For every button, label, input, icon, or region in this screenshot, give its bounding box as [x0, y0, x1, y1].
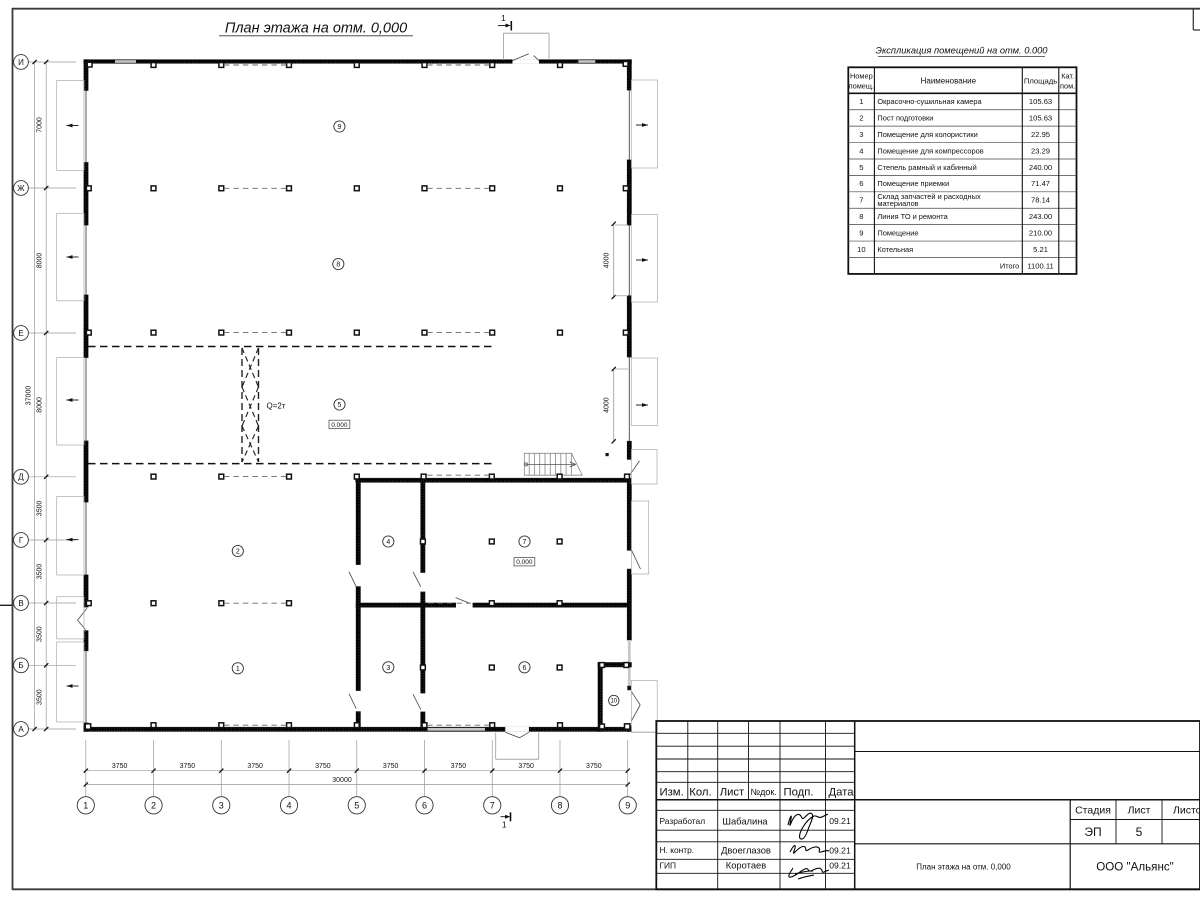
svg-text:7: 7 [859, 196, 863, 205]
svg-text:105.63: 105.63 [1029, 97, 1052, 106]
svg-text:Н. контр.: Н. контр. [660, 845, 695, 855]
svg-text:3750: 3750 [180, 763, 196, 770]
svg-text:30000: 30000 [332, 777, 352, 784]
svg-text:Лист: Лист [720, 786, 745, 798]
svg-text:78.14: 78.14 [1031, 196, 1050, 205]
svg-text:5: 5 [338, 402, 342, 409]
svg-text:ЭП: ЭП [1084, 825, 1101, 839]
svg-text:1: 1 [236, 666, 240, 673]
svg-text:240.00: 240.00 [1029, 163, 1052, 172]
svg-text:Стадия: Стадия [1075, 805, 1111, 817]
svg-text:И: И [18, 58, 24, 67]
svg-text:3500: 3500 [37, 689, 44, 705]
svg-text:8: 8 [859, 212, 863, 221]
svg-text:3500: 3500 [37, 626, 44, 642]
svg-text:Помещение приемки: Помещение приемки [877, 179, 949, 188]
svg-text:1: 1 [83, 801, 88, 811]
svg-text:4000: 4000 [603, 397, 610, 413]
svg-text:8000: 8000 [37, 397, 44, 413]
svg-text:5: 5 [1136, 825, 1143, 839]
svg-text:7: 7 [523, 539, 527, 546]
svg-text:материалов: материалов [877, 199, 918, 208]
svg-text:ГИП: ГИП [660, 860, 677, 870]
svg-text:6: 6 [523, 665, 527, 672]
svg-text:71.47: 71.47 [1031, 179, 1050, 188]
svg-text:План этажа на отм. 0,000: План этажа на отм. 0,000 [916, 862, 1011, 871]
svg-text:Дата: Дата [829, 786, 855, 798]
svg-text:Котельная: Котельная [877, 245, 913, 254]
svg-text:Подп.: Подп. [784, 786, 814, 798]
svg-text:Б: Б [18, 661, 23, 670]
svg-text:Изм.: Изм. [660, 786, 684, 798]
svg-text:Кат.: Кат. [1061, 72, 1074, 81]
svg-text:09.21: 09.21 [829, 816, 851, 826]
svg-text:3750: 3750 [383, 763, 399, 770]
svg-text:4: 4 [287, 801, 292, 811]
svg-text:8000: 8000 [37, 253, 44, 269]
svg-text:Q=2т: Q=2т [267, 401, 286, 410]
svg-text:Номер: Номер [850, 72, 873, 81]
svg-text:Итого: Итого [1000, 261, 1019, 270]
svg-text:Окрасочно-сушильная камера: Окрасочно-сушильная камера [877, 97, 982, 106]
svg-text:09.21: 09.21 [829, 861, 851, 871]
svg-text:3750: 3750 [112, 763, 128, 770]
svg-text:1100.11: 1100.11 [1027, 261, 1053, 270]
svg-text:5: 5 [859, 163, 863, 172]
svg-text:6: 6 [859, 179, 863, 188]
svg-text:Е: Е [18, 329, 23, 338]
svg-text:3500: 3500 [37, 564, 44, 580]
svg-text:Степель рамный и кабинный: Степель рамный и кабинный [877, 163, 976, 172]
svg-text:План этажа на отм. 0,000: План этажа на отм. 0,000 [225, 21, 407, 37]
svg-text:4: 4 [859, 146, 863, 155]
svg-text:Г: Г [19, 536, 24, 545]
svg-text:5: 5 [354, 801, 359, 811]
svg-text:2: 2 [859, 114, 863, 123]
svg-text:В: В [18, 599, 23, 608]
svg-text:2: 2 [151, 801, 156, 811]
svg-text:22.95: 22.95 [1031, 130, 1050, 139]
svg-text:2: 2 [236, 549, 240, 556]
svg-text:Кол.: Кол. [689, 786, 711, 798]
svg-text:3750: 3750 [247, 763, 263, 770]
svg-text:помещ.: помещ. [849, 82, 874, 91]
svg-text:0.000: 0.000 [516, 559, 533, 566]
svg-text:Площадь: Площадь [1024, 77, 1057, 86]
svg-text:7000: 7000 [37, 117, 44, 133]
svg-text:Пост подготовки: Пост подготовки [877, 114, 933, 123]
svg-text:Помещение для компрессоров: Помещение для компрессоров [877, 146, 983, 155]
svg-text:№док.: №док. [751, 787, 777, 797]
svg-text:6: 6 [422, 801, 427, 811]
svg-text:3750: 3750 [451, 763, 467, 770]
svg-text:37000: 37000 [26, 386, 33, 406]
svg-text:Д: Д [18, 473, 24, 482]
svg-text:3750: 3750 [315, 763, 331, 770]
svg-text:23.29: 23.29 [1031, 146, 1050, 155]
svg-text:9: 9 [625, 801, 630, 811]
svg-text:А: А [18, 725, 24, 734]
svg-text:3: 3 [219, 801, 224, 811]
svg-text:10: 10 [857, 245, 865, 254]
svg-text:105.63: 105.63 [1029, 114, 1052, 123]
svg-text:Листов: Листов [1173, 805, 1200, 817]
svg-text:210.00: 210.00 [1029, 228, 1052, 237]
svg-text:пом.: пом. [1060, 82, 1075, 91]
svg-text:Помещение для колористики: Помещение для колористики [877, 130, 977, 139]
svg-text:3500: 3500 [37, 501, 44, 517]
svg-text:7: 7 [490, 801, 495, 811]
svg-text:1: 1 [502, 820, 507, 830]
svg-text:Линия ТО и ремонта: Линия ТО и ремонта [877, 212, 948, 221]
svg-text:Коротаев: Коротаев [726, 860, 767, 871]
svg-text:9: 9 [859, 228, 863, 237]
svg-text:9: 9 [337, 124, 341, 131]
svg-text:4: 4 [386, 539, 390, 546]
svg-text:Ж: Ж [17, 184, 25, 193]
svg-text:8: 8 [557, 801, 562, 811]
svg-text:3: 3 [859, 130, 863, 139]
svg-text:Шабалина: Шабалина [722, 815, 768, 826]
svg-text:3: 3 [386, 665, 390, 672]
svg-text:1: 1 [501, 13, 506, 23]
svg-text:0.000: 0.000 [331, 422, 348, 429]
svg-text:4000: 4000 [603, 253, 610, 269]
svg-text:Двоеглазов: Двоеглазов [721, 845, 771, 856]
svg-text:10: 10 [610, 699, 617, 705]
svg-text:09.21: 09.21 [829, 845, 851, 855]
svg-text:Наименование: Наименование [921, 77, 977, 86]
svg-text:5.21: 5.21 [1033, 245, 1048, 254]
svg-text:ООО "Альянс": ООО "Альянс" [1096, 861, 1174, 874]
svg-text:1: 1 [859, 97, 863, 106]
svg-text:8: 8 [336, 262, 340, 269]
svg-text:3750: 3750 [586, 763, 602, 770]
svg-text:3750: 3750 [518, 763, 534, 770]
svg-text:Разработал: Разработал [660, 816, 706, 826]
svg-text:Экспликация помещений на отм.: Экспликация помещений на отм. 0.000 [876, 46, 1049, 56]
svg-text:Лист: Лист [1128, 805, 1151, 817]
svg-text:243.00: 243.00 [1029, 212, 1052, 221]
svg-text:Помещение: Помещение [877, 228, 918, 237]
